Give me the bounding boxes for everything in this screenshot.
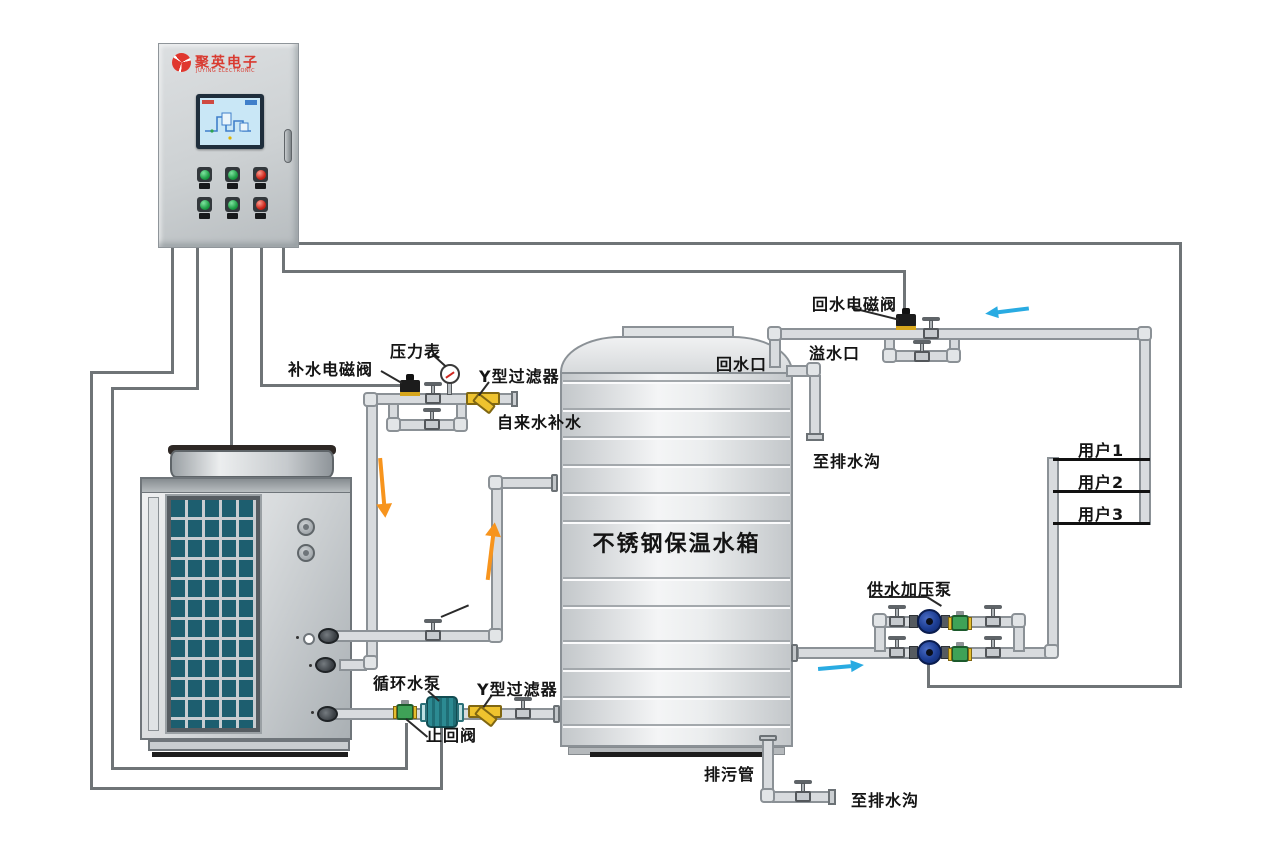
circulation-valve bbox=[514, 697, 532, 719]
tank-rib bbox=[563, 464, 790, 469]
panel-button-green bbox=[225, 167, 240, 189]
cabinet-handle bbox=[284, 129, 292, 163]
wire-checkvalve-b bbox=[111, 387, 199, 390]
tap-water-inlet-cap bbox=[511, 391, 518, 407]
label-y-filter-bottom: Y型过滤器 bbox=[477, 676, 558, 700]
check-valve bbox=[393, 700, 417, 721]
pipe-elbow bbox=[1011, 613, 1026, 628]
tank-rib bbox=[563, 436, 790, 441]
return-valve bbox=[922, 317, 940, 339]
wire-makeup-solenoid bbox=[260, 384, 404, 387]
booster-pump-lower bbox=[909, 640, 950, 666]
wire-makeup-solenoid bbox=[260, 246, 263, 387]
fan-knob bbox=[297, 518, 315, 536]
return-drop-to-tank bbox=[769, 338, 781, 368]
wire-checkvalve-b bbox=[111, 767, 408, 770]
return-solenoid-valve bbox=[896, 308, 916, 332]
panel-button-red bbox=[253, 197, 268, 219]
pipe-elbow bbox=[1137, 326, 1152, 341]
heat-pump-dot bbox=[309, 664, 312, 667]
label-user-1: 用户1 bbox=[1078, 437, 1124, 461]
tank-rib bbox=[563, 408, 790, 413]
booster-pump-upper bbox=[909, 609, 950, 635]
evaporator-coil bbox=[167, 496, 260, 732]
wire-pump-a bbox=[90, 371, 93, 790]
pressure-gauge bbox=[440, 364, 460, 384]
tank-rib bbox=[563, 724, 790, 729]
label-y-filter-top: Y型过滤器 bbox=[479, 363, 560, 387]
pipe-elbow bbox=[872, 613, 887, 628]
panel-button-green bbox=[197, 167, 212, 189]
pipe-elbow bbox=[767, 326, 782, 341]
panel-button-green bbox=[197, 197, 212, 219]
heat-pump-top-band bbox=[142, 479, 350, 493]
booster-valve bbox=[888, 636, 906, 658]
flow-arrow-left bbox=[984, 301, 1031, 321]
wire-checkvalve-b bbox=[405, 723, 408, 769]
panel-button-red bbox=[253, 167, 268, 189]
drain-pipe-v bbox=[762, 737, 774, 794]
pipe-elbow bbox=[806, 362, 821, 377]
pipe-elbow bbox=[488, 628, 503, 643]
tank-inlet-flange bbox=[551, 474, 558, 492]
tank-rib bbox=[563, 380, 790, 385]
makeup-bypass-valve bbox=[423, 408, 441, 430]
heat-pump-dot bbox=[296, 636, 299, 639]
label-to-drain-overflow: 至排水沟 bbox=[813, 448, 881, 472]
heatpump-out-valve bbox=[424, 619, 442, 641]
tank-rib bbox=[563, 492, 790, 497]
drain-top-flange bbox=[759, 735, 777, 741]
wire-booster-pump bbox=[1179, 242, 1182, 688]
fan-shroud bbox=[170, 450, 334, 478]
riser-top-pipe bbox=[501, 477, 555, 489]
booster-check-valve bbox=[948, 642, 972, 663]
tank-supply-flange bbox=[791, 644, 798, 662]
return-bypass-valve bbox=[913, 340, 931, 362]
heat-pump-cabinet bbox=[140, 477, 352, 740]
pipe-elbow bbox=[488, 475, 503, 490]
tank: 不锈钢保温水箱 bbox=[560, 372, 793, 747]
makeup-riser-pipe bbox=[366, 403, 378, 661]
return-pipe-top bbox=[780, 328, 1144, 340]
tank-label: 不锈钢保温水箱 bbox=[562, 526, 791, 558]
wire-return-solenoid bbox=[282, 270, 906, 273]
tank-rib bbox=[563, 668, 790, 673]
label-return-port: 回水口 bbox=[716, 351, 767, 375]
y-filter-top bbox=[466, 392, 500, 418]
wire-pump-a bbox=[90, 787, 443, 790]
overflow-outlet-cap bbox=[806, 433, 824, 441]
tank-rib bbox=[563, 577, 790, 582]
label-return-solenoid: 回水电磁阀 bbox=[812, 291, 897, 315]
pipe-elbow bbox=[363, 655, 378, 670]
label-user-2: 用户2 bbox=[1078, 469, 1124, 493]
label-overflow-port: 溢水口 bbox=[809, 340, 860, 364]
booster-right-drop bbox=[1013, 626, 1025, 652]
pipe-elbow bbox=[946, 348, 961, 363]
pipe-elbow bbox=[760, 788, 775, 803]
label-pressure-gauge: 压力表 bbox=[390, 338, 441, 362]
heat-pump-base bbox=[148, 740, 350, 751]
tank-rib bbox=[563, 605, 790, 610]
drain-outlet-cap bbox=[828, 789, 836, 805]
booster-valve bbox=[984, 636, 1002, 658]
brand-subtitle: JUYING ELECTRONIC bbox=[196, 68, 255, 74]
booster-check-valve bbox=[948, 611, 972, 632]
makeup-valve bbox=[424, 382, 442, 404]
fan-knob bbox=[297, 544, 315, 562]
tank-rib bbox=[563, 520, 790, 525]
users-right-pipe bbox=[1139, 338, 1151, 525]
panel-button-green bbox=[225, 197, 240, 219]
valve-callout bbox=[441, 604, 469, 618]
tank-rib bbox=[563, 696, 790, 701]
makeup-solenoid-valve bbox=[400, 374, 420, 398]
pipe-elbow bbox=[882, 348, 897, 363]
pipe-elbow bbox=[363, 392, 378, 407]
label-tap-water: 自来水补水 bbox=[497, 409, 582, 433]
hmi-screen-diagram bbox=[200, 98, 260, 145]
wire-pump-a bbox=[90, 371, 174, 374]
heat-pump-dot bbox=[303, 633, 315, 645]
control-cabinet: 聚英电子 JUYING ELECTRONIC bbox=[158, 43, 299, 248]
drain-valve bbox=[794, 780, 812, 802]
pipe-elbow bbox=[453, 417, 468, 432]
wire-booster-pump bbox=[298, 242, 1182, 245]
label-circulation-pump: 循环水泵 bbox=[373, 670, 441, 694]
heatpump-port-middle bbox=[315, 657, 336, 673]
booster-valve bbox=[888, 605, 906, 627]
wire-pump-a bbox=[171, 246, 174, 374]
heatpump-out-pipe bbox=[333, 630, 493, 642]
brand-logo-icon bbox=[172, 53, 191, 72]
wire-heatpump-fan bbox=[230, 246, 233, 450]
heat-pump-dot bbox=[311, 711, 314, 714]
label-makeup-solenoid: 补水电磁阀 bbox=[288, 356, 373, 380]
overflow-pipe-v bbox=[809, 375, 821, 435]
heat-pump-side-trim bbox=[148, 497, 159, 731]
pipe-elbow bbox=[1044, 644, 1059, 659]
label-to-drain-bottom: 至排水沟 bbox=[851, 787, 919, 811]
tank-rib bbox=[563, 640, 790, 645]
pipe-elbow bbox=[386, 417, 401, 432]
label-drain-pipe: 排污管 bbox=[704, 761, 755, 785]
booster-left-drop bbox=[874, 626, 886, 652]
wire-return-solenoid bbox=[903, 270, 906, 312]
label-user-3: 用户3 bbox=[1078, 501, 1124, 525]
tank-outlet-flange bbox=[553, 705, 560, 723]
tank-foot-bar bbox=[590, 752, 770, 757]
wire-checkvalve-b bbox=[111, 387, 114, 770]
wire-booster-pump bbox=[927, 685, 1182, 688]
heat-pump-system-diagram: 不锈钢保温水箱 bbox=[0, 0, 1264, 855]
label-booster-pump: 供水加压泵 bbox=[867, 576, 952, 600]
label-check-valve: 止回阀 bbox=[426, 722, 477, 746]
users-left-pipe bbox=[1047, 457, 1059, 649]
heatpump-port-top bbox=[318, 628, 339, 644]
hmi-touchscreen bbox=[196, 94, 264, 149]
wire-return-solenoid bbox=[282, 246, 285, 273]
heatpump-port-bottom bbox=[317, 706, 338, 722]
booster-valve bbox=[984, 605, 1002, 627]
heat-pump-foot-bar bbox=[152, 752, 348, 757]
wire-checkvalve-b bbox=[196, 246, 199, 390]
flow-arrow-right bbox=[817, 658, 864, 676]
